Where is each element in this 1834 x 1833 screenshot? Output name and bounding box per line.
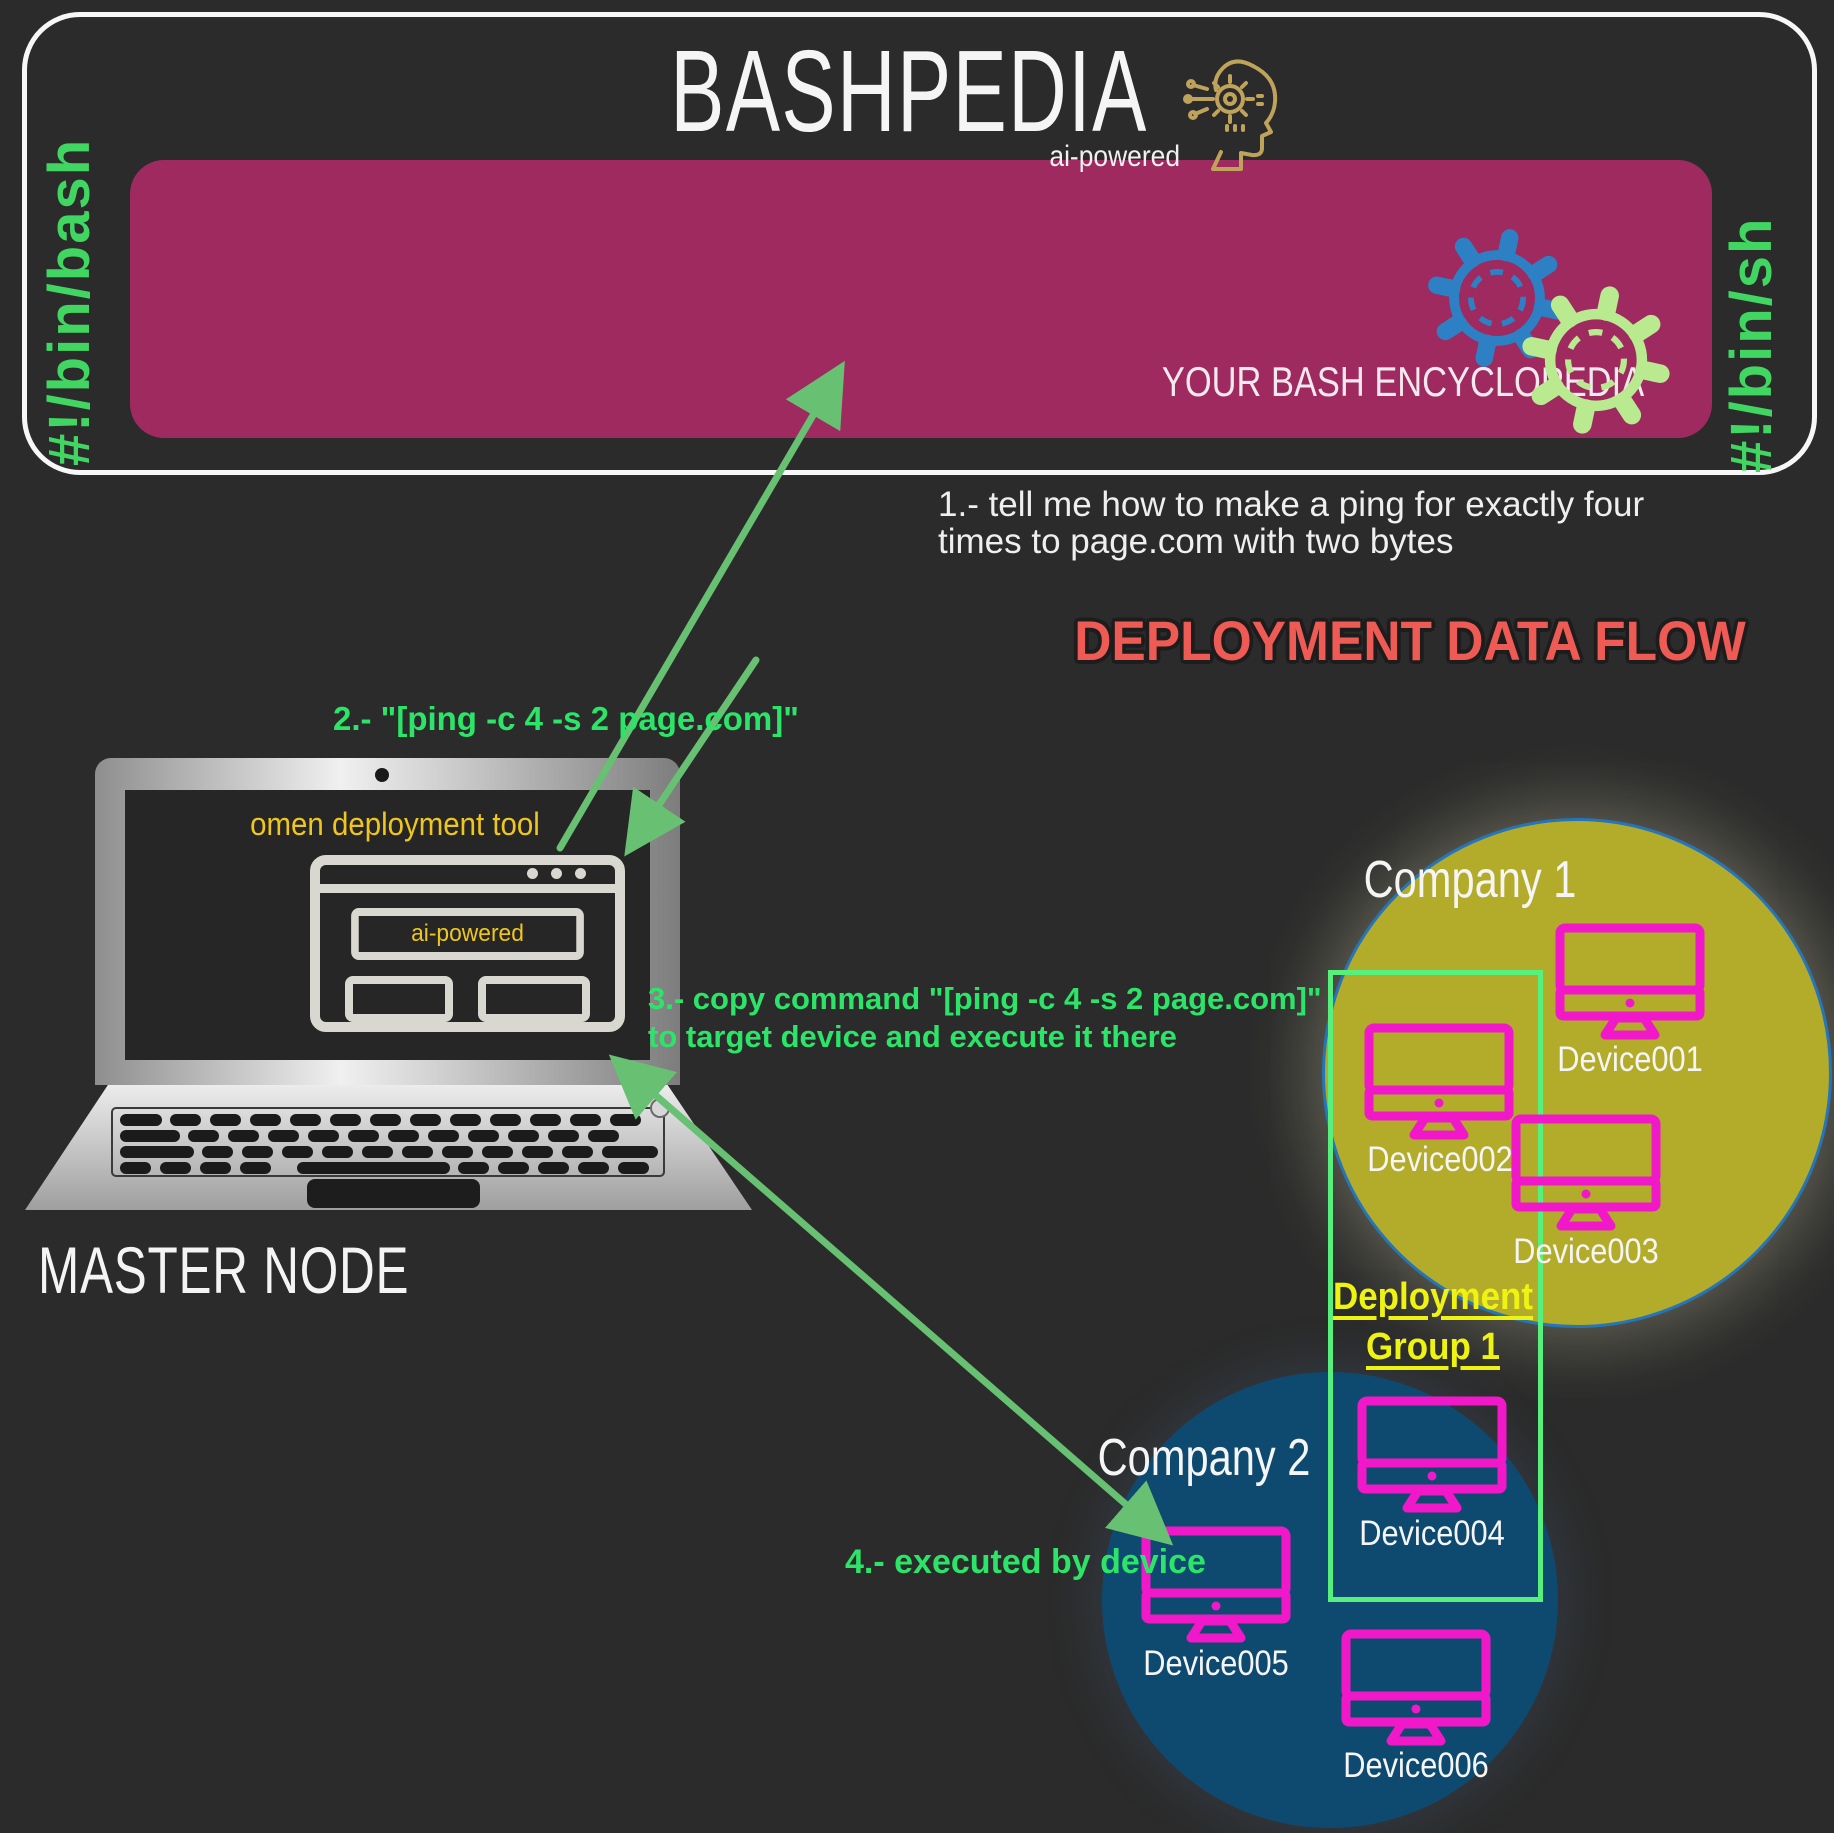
banner-tagline: YOUR BASH ENCYCLOPEDIA — [1162, 358, 1535, 406]
step3-annotation: 3.- copy command "[ping -c 4 -s 2 page.c… — [648, 980, 1322, 1056]
master-node-label: MASTER NODE — [38, 1232, 409, 1308]
device-label: Device006 — [1328, 1746, 1504, 1786]
step3-line1: 3.- copy command "[ping -c 4 -s 2 page.c… — [648, 980, 1322, 1018]
step1-annotation: 1.- tell me how to make a ping for exact… — [938, 486, 1644, 560]
deployment-group-line2: Group 1 — [1366, 1326, 1500, 1368]
step1-line1: 1.- tell me how to make a ping for exact… — [938, 486, 1644, 523]
step1-line2: times to page.com with two bytes — [938, 523, 1644, 560]
device-monitor-icon — [1340, 1628, 1492, 1746]
step3-line2: to target device and execute it there — [648, 1018, 1322, 1056]
app-window-titlebar — [310, 884, 625, 893]
window-panel — [345, 976, 453, 1022]
infographic-canvas: #!/bin/bash #!/bin/sh BASHPEDIA ai-power… — [0, 0, 1834, 1833]
window-dot-icon — [575, 868, 586, 879]
ai-head-icon — [1183, 52, 1287, 174]
deployment-group-label: Deployment Group 1 — [1327, 1272, 1539, 1372]
ai-powered-badge: ai-powered — [351, 908, 584, 960]
window-panel — [478, 976, 590, 1022]
device-label: Device002 — [1352, 1140, 1528, 1180]
company1-label: Company 1 — [1318, 850, 1622, 910]
laptop-trackpad — [307, 1179, 480, 1208]
device-monitor-icon — [1363, 1022, 1515, 1140]
window-dot-icon — [551, 868, 562, 879]
company2-label: Company 2 — [1052, 1428, 1356, 1488]
device-label: Device004 — [1344, 1514, 1520, 1554]
step4-annotation: 4.- executed by device — [845, 1543, 1206, 1582]
flow-title: DEPLOYMENT DATA FLOW — [1070, 608, 1751, 673]
device-monitor-icon — [1554, 922, 1706, 1040]
device-label: Device001 — [1542, 1040, 1718, 1080]
laptop-power-button — [650, 1098, 670, 1118]
deployment-tool-title: omen deployment tool — [188, 806, 602, 843]
device-label: Device005 — [1128, 1644, 1304, 1684]
window-dot-icon — [527, 868, 538, 879]
device-monitor-icon — [1510, 1113, 1662, 1231]
step2-annotation: 2.- "[ping -c 4 -s 2 page.com]" — [333, 700, 799, 738]
device-label: Device003 — [1498, 1232, 1674, 1272]
device-monitor-icon — [1356, 1395, 1508, 1513]
deployment-group-line1: Deployment — [1333, 1276, 1533, 1318]
